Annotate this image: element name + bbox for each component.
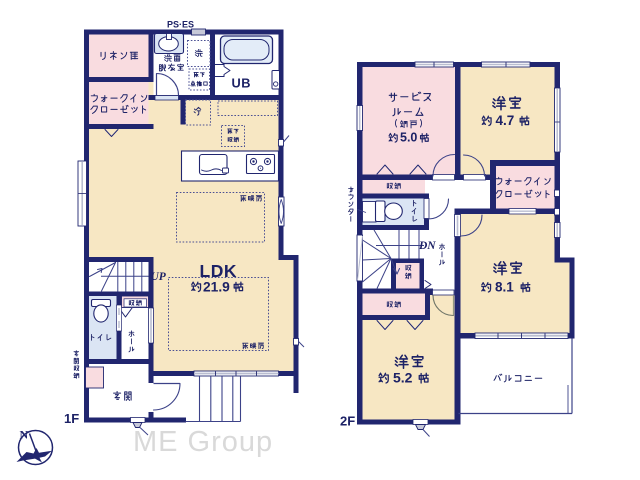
svg-text:1F: 1F [64, 411, 79, 426]
svg-text:8.1: 8.1 [495, 280, 514, 295]
svg-text:PS·ES: PS·ES [167, 20, 194, 30]
svg-text:5.0: 5.0 [400, 131, 417, 145]
svg-text:21.9: 21.9 [203, 280, 230, 295]
svg-text:UP: UP [151, 271, 167, 283]
svg-text:ME Group: ME Group [133, 426, 273, 458]
svg-text:N: N [20, 428, 29, 442]
svg-text:LDK: LDK [200, 261, 237, 281]
svg-text:2F: 2F [340, 414, 355, 429]
svg-text:UB: UB [232, 76, 251, 91]
svg-text:DN: DN [418, 240, 436, 252]
svg-text:5.2: 5.2 [393, 370, 413, 386]
svg-text:4.7: 4.7 [496, 113, 515, 128]
